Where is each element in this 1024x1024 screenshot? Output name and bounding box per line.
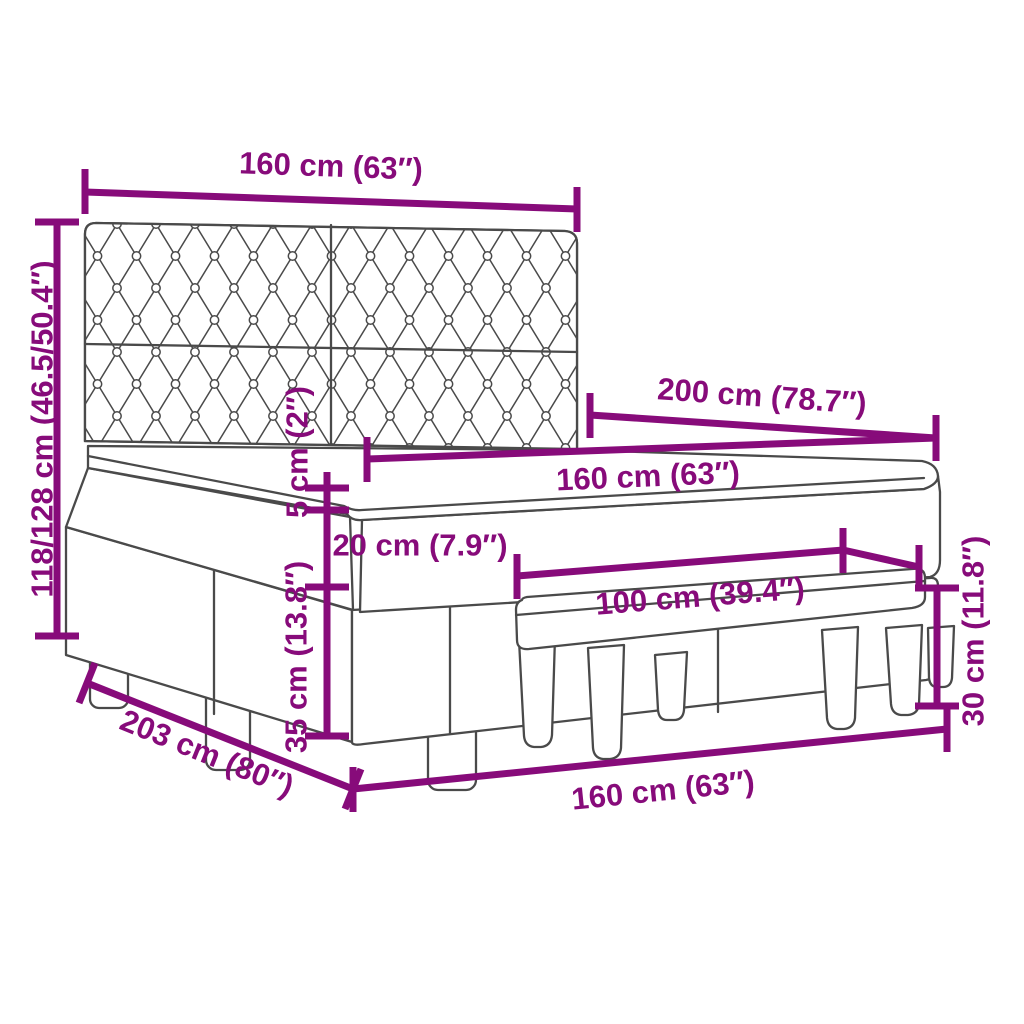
bench-leg	[588, 645, 624, 759]
dim-headboard-width: 160 cm (63″)	[85, 145, 577, 232]
bed-dimension-drawing: 160 cm (63″) 118/128 cm (46.5/50.4″) 200…	[0, 0, 1024, 1024]
dim-label: 118/128 cm (46.5/50.4″)	[25, 260, 60, 597]
bench-leg	[655, 652, 687, 720]
bench-leg	[822, 627, 858, 729]
bench-leg	[928, 626, 954, 687]
dimension-diagram: 160 cm (63″) 118/128 cm (46.5/50.4″) 200…	[0, 0, 1024, 1024]
bed-drawing	[66, 223, 940, 790]
dim-label-base-height: 35 cm (13.8″)	[279, 561, 314, 753]
dim-label-topper: 5 cm (2″)	[280, 386, 315, 518]
dim-label: 30 cm (11.8″)	[956, 536, 991, 727]
dim-label: 200 cm (78.7″)	[656, 371, 868, 421]
headboard	[85, 223, 577, 449]
dim-label: 160 cm (63″)	[570, 763, 756, 816]
dim-label: 160 cm (63″)	[239, 145, 424, 186]
bench-leg	[886, 625, 922, 715]
dim-label-mattress-height: 20 cm (7.9″)	[332, 528, 507, 563]
bench-leg	[519, 637, 555, 747]
